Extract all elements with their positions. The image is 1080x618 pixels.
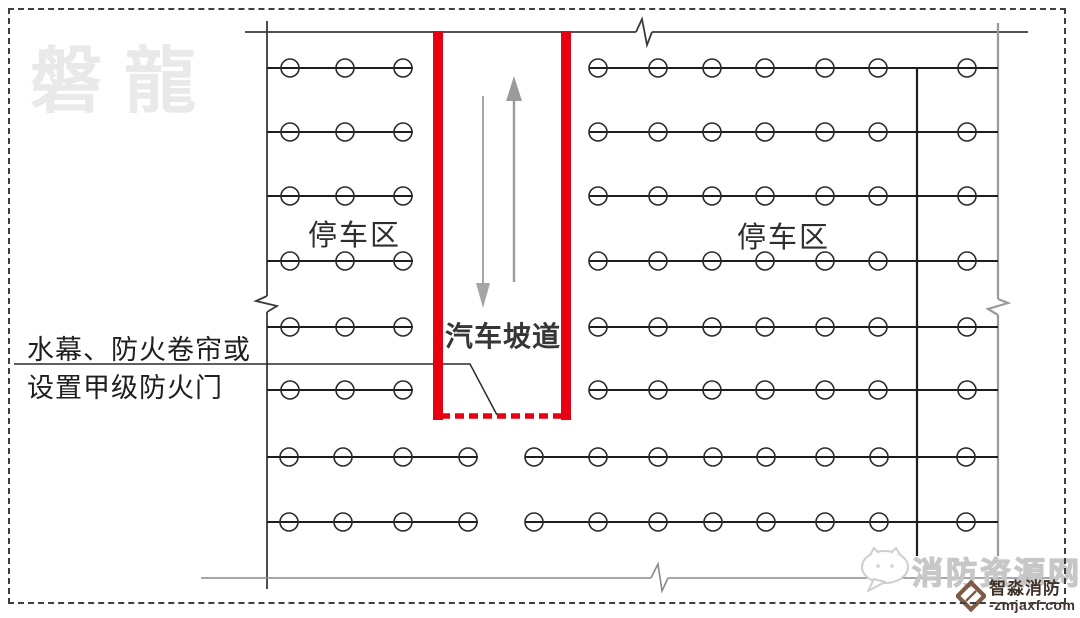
ramp-right-red-wall <box>561 31 571 420</box>
brand-url: -zmjaxf.com <box>989 598 1075 613</box>
parking-garage-fire-protection-diagram: 磐龍 <box>0 0 1080 618</box>
diagram-linework <box>0 0 1080 618</box>
bottom-break-icon <box>651 564 668 591</box>
brand-text-block: 智淼消防 -zmjaxf.com <box>989 580 1075 613</box>
car-ramp <box>433 31 571 420</box>
brand-watermark: 智淼消防 -zmjaxf.com <box>956 580 1075 613</box>
car-ramp-label: 汽车坡道 <box>430 315 576 355</box>
chat-bubble-cat-icon <box>858 547 912 593</box>
ramp-left-red-wall <box>433 31 443 420</box>
annotation-line-1: 水幕、防火卷帘或 <box>27 331 251 369</box>
up-arrow-icon <box>506 76 522 282</box>
brand-name: 智淼消防 <box>989 580 1075 598</box>
left-parking-area-label: 停车区 <box>308 212 401 254</box>
brand-diamond-logo-icon <box>956 580 986 612</box>
sprinkler-rows-layer <box>267 59 998 531</box>
annotation-line-2: 设置甲级防火门 <box>27 369 251 407</box>
right-parking-area-label: 停车区 <box>737 214 830 256</box>
right-break-icon <box>988 299 1008 315</box>
top-break-icon <box>636 19 652 45</box>
fire-separation-annotation: 水幕、防火卷帘或 设置甲级防火门 <box>27 331 251 407</box>
left-break-icon <box>256 296 277 312</box>
down-arrow-icon <box>476 96 490 308</box>
diagram-boundary-lines <box>201 19 1058 591</box>
